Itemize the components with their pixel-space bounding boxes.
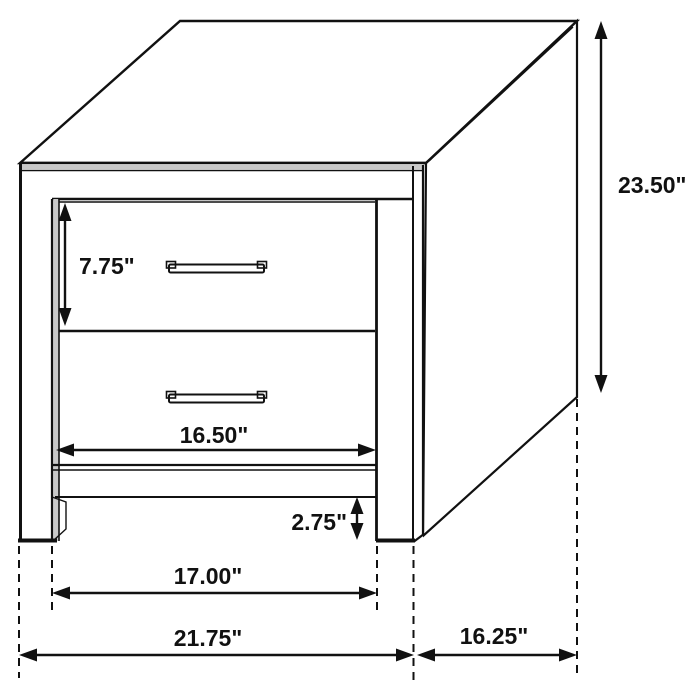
arrow-right-icon bbox=[559, 649, 577, 662]
inner-leg-span-label: 17.00" bbox=[174, 563, 242, 589]
side-depth-dimension: 16.25" bbox=[417, 623, 577, 662]
drawer-height-label: 7.75" bbox=[79, 253, 135, 279]
arrow-down-icon bbox=[595, 375, 608, 393]
base-clearance-label: 2.75" bbox=[291, 509, 347, 535]
overall-width-dimension: 21.75" bbox=[19, 625, 414, 662]
arrow-left-icon bbox=[19, 649, 37, 662]
left-stile-shading bbox=[53, 199, 58, 541]
top-right-bevel-line bbox=[429, 27, 573, 161]
side-depth-label: 16.25" bbox=[460, 623, 528, 649]
nightstand-dimension-diagram: 23.50" 7.75" 16.50" 2.75" 17 bbox=[0, 0, 700, 700]
overall-height-dimension: 23.50" bbox=[595, 21, 687, 393]
overall-width-label: 21.75" bbox=[174, 625, 242, 651]
nightstand-outline bbox=[18, 21, 577, 542]
side-panel bbox=[423, 21, 577, 536]
arrow-up-icon bbox=[595, 21, 608, 39]
arrow-right-icon bbox=[359, 587, 377, 600]
arrow-left-icon bbox=[52, 587, 70, 600]
diagram-canvas: 23.50" 7.75" 16.50" 2.75" 17 bbox=[0, 0, 700, 700]
arrow-left-icon bbox=[417, 649, 435, 662]
arrow-right-icon bbox=[396, 649, 414, 662]
top-surface bbox=[20, 21, 577, 163]
front-face bbox=[20, 163, 423, 540]
inner-leg-span-dimension: 17.00" bbox=[52, 563, 377, 600]
overall-height-label: 23.50" bbox=[618, 172, 686, 198]
drawer-width-label: 16.50" bbox=[180, 422, 248, 448]
